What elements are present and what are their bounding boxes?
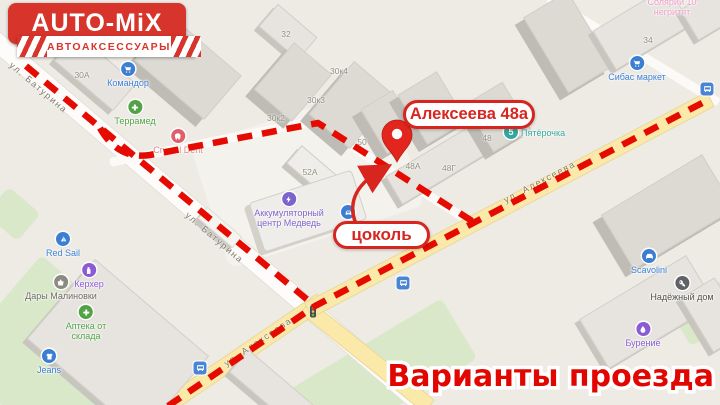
sofa-icon — [642, 249, 656, 263]
bus-stop-icon[interactable] — [701, 83, 714, 96]
poi-label: Командор — [107, 78, 149, 88]
traffic-light-icon — [309, 305, 318, 323]
caption: Варианты проезда Варианты проезда — [387, 359, 714, 395]
poi-burenie[interactable]: Бурение — [625, 322, 660, 348]
poi-red-sail[interactable]: Red Sail — [46, 232, 80, 258]
poi-label: Пятёрочка — [521, 128, 565, 138]
poi-label: Бурение — [625, 338, 660, 348]
tooth-icon — [171, 129, 185, 143]
tshirt-icon — [42, 349, 56, 363]
poi-scavolini[interactable]: Scavolini — [631, 249, 667, 275]
address-callout: Алексеева 48а — [403, 100, 535, 129]
poi-akkum-center[interactable]: Аккумуляторныйцентр Медведь — [254, 192, 324, 228]
logo: AUTO-MiX АВТОАКСЕССУАРЫ — [8, 3, 198, 44]
poi-terramed[interactable]: Террамед — [114, 100, 155, 126]
basket-icon — [54, 275, 68, 289]
poi-jeans[interactable]: Jeans — [37, 349, 61, 375]
poi-apteka[interactable]: Аптека отсклада — [66, 305, 106, 341]
house-number: 48 — [482, 133, 491, 143]
bolt-icon — [282, 192, 296, 206]
street-label: ул. Батурина — [8, 60, 70, 115]
poi-label: Crystal Dent — [153, 145, 203, 155]
poi-label: Red Sail — [46, 248, 80, 258]
floor-text: цоколь — [351, 225, 411, 245]
street-label: ул. Батурина — [184, 210, 246, 265]
map-screenshot: ул. Батуринаул. Батуринаул. Алексееваул.… — [0, 0, 720, 405]
house-number: 30А — [74, 70, 89, 80]
poi-crystal-dent[interactable]: Crystal Dent — [153, 129, 203, 155]
cross-icon — [128, 100, 142, 114]
poi-label: Scavolini — [631, 265, 667, 275]
poi-label: Террамед — [114, 116, 155, 126]
car-icon — [341, 205, 355, 219]
house-number: 34 — [643, 35, 652, 45]
sail-icon — [56, 232, 70, 246]
logo-banner: АВТОАКСЕССУАРЫ — [17, 36, 195, 57]
hazard-stripes-icon — [171, 36, 201, 57]
house-number: 30к2 — [267, 113, 285, 123]
poi-dary-malinovki[interactable]: Дары Малиновки — [25, 275, 97, 301]
floor-callout: цоколь — [333, 221, 430, 249]
house-number: 50 — [357, 137, 366, 147]
poi-label: Аккумуляторныйцентр Медведь — [254, 208, 324, 228]
house-number: 30к3 — [307, 95, 325, 105]
poi-komandor[interactable]: Командор — [107, 62, 149, 88]
address-text: Алексеева 48а — [410, 105, 528, 124]
poi-label: Надёжный дом — [650, 292, 713, 302]
logo-title: AUTO-MiX — [31, 9, 162, 38]
poi-label: Аптека отсклада — [66, 321, 106, 341]
poi-label: Сибас маркет — [608, 72, 666, 82]
poi-label: Дары Малиновки — [25, 291, 97, 301]
poi-nadezhny-dom[interactable]: Надёжный дом — [650, 276, 713, 302]
house-number: 30к4 — [330, 66, 348, 76]
cart-icon — [630, 56, 644, 70]
map-label-layer: ул. Батуринаул. Батуринаул. Алексееваул.… — [0, 0, 720, 405]
drop-icon — [636, 322, 650, 336]
house-number: 48А — [405, 161, 420, 171]
poi-label: Jeans — [37, 365, 61, 375]
hazard-stripes-icon — [17, 36, 47, 57]
bus-stop-icon[interactable] — [194, 362, 207, 375]
logo-subtitle: АВТОАКСЕССУАРЫ — [47, 36, 171, 57]
poi-solarium[interactable]: Солярий 10негритят — [647, 0, 696, 17]
street-label: ул. Алексеева — [502, 159, 577, 205]
street-label: ул. Алексеева — [222, 315, 294, 368]
cross-icon — [79, 305, 93, 319]
house-number: 48Г — [442, 163, 456, 173]
caption-text: Варианты проезда — [387, 359, 714, 394]
poi-label: Солярий 10негритят — [647, 0, 696, 17]
house-number: 32 — [281, 29, 290, 39]
key-icon — [675, 276, 689, 290]
bus-stop-icon[interactable] — [397, 277, 410, 290]
poi-sibas-market[interactable]: Сибас маркет — [608, 56, 666, 82]
cart-icon — [121, 62, 135, 76]
house-number: 52А — [302, 167, 317, 177]
